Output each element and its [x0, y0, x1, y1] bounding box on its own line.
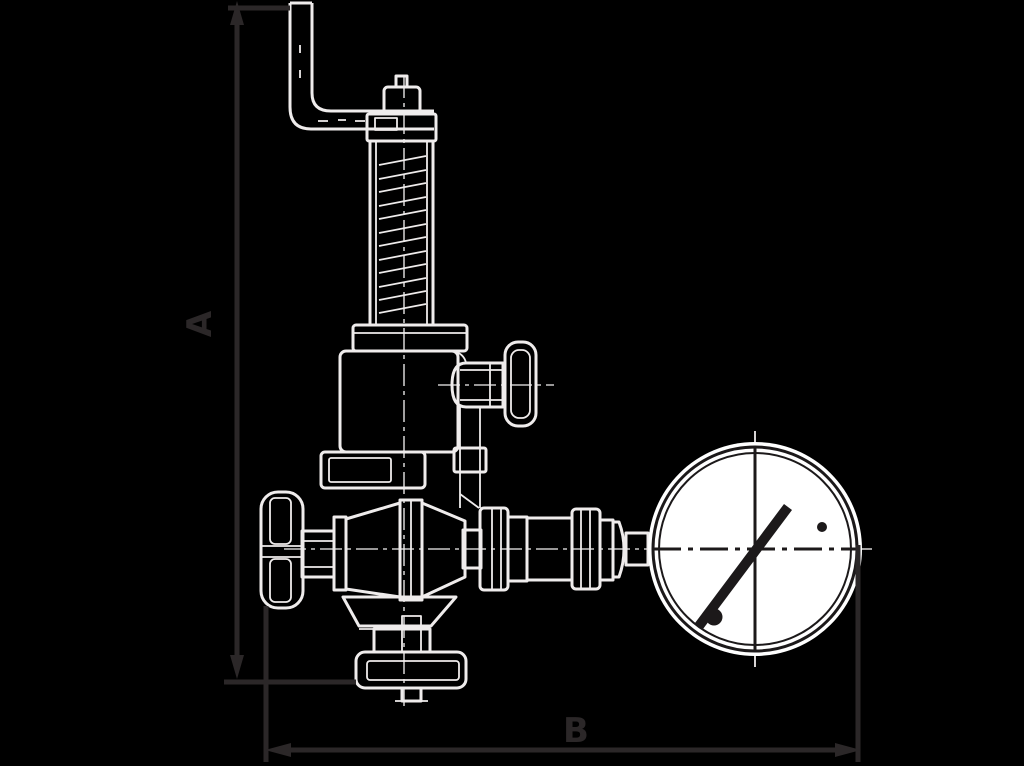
dimension-B-label: B [563, 711, 589, 751]
arrow-down-icon [230, 655, 244, 679]
safety-valve-diagram: A B [0, 0, 1024, 766]
valve-assembly [261, 3, 862, 701]
spring-bonnet [370, 141, 433, 325]
test-lever [290, 3, 434, 129]
gauge-cock-branch [452, 342, 536, 508]
dimension-A-label: A [180, 310, 220, 337]
mid-flange [321, 452, 425, 488]
drawing-canvas: A B [0, 0, 1024, 766]
down-pipe-collar [454, 448, 486, 472]
dimension-A: A [180, 1, 356, 682]
gauge-needle-counterweight [706, 609, 723, 626]
gauge-face-screw [817, 522, 827, 532]
bonnet-flange [353, 325, 467, 351]
pressure-gauge [648, 431, 862, 667]
spring-coils [379, 156, 426, 313]
valve-body [302, 500, 465, 652]
inlet-union-nut [356, 652, 466, 701]
upper-body [340, 351, 458, 452]
spindle-cap [367, 76, 436, 141]
inlet-handwheel [261, 492, 303, 608]
arrow-up-icon [230, 1, 244, 25]
arrow-left-icon [265, 743, 291, 757]
gauge-cock-handwheel [505, 342, 536, 426]
